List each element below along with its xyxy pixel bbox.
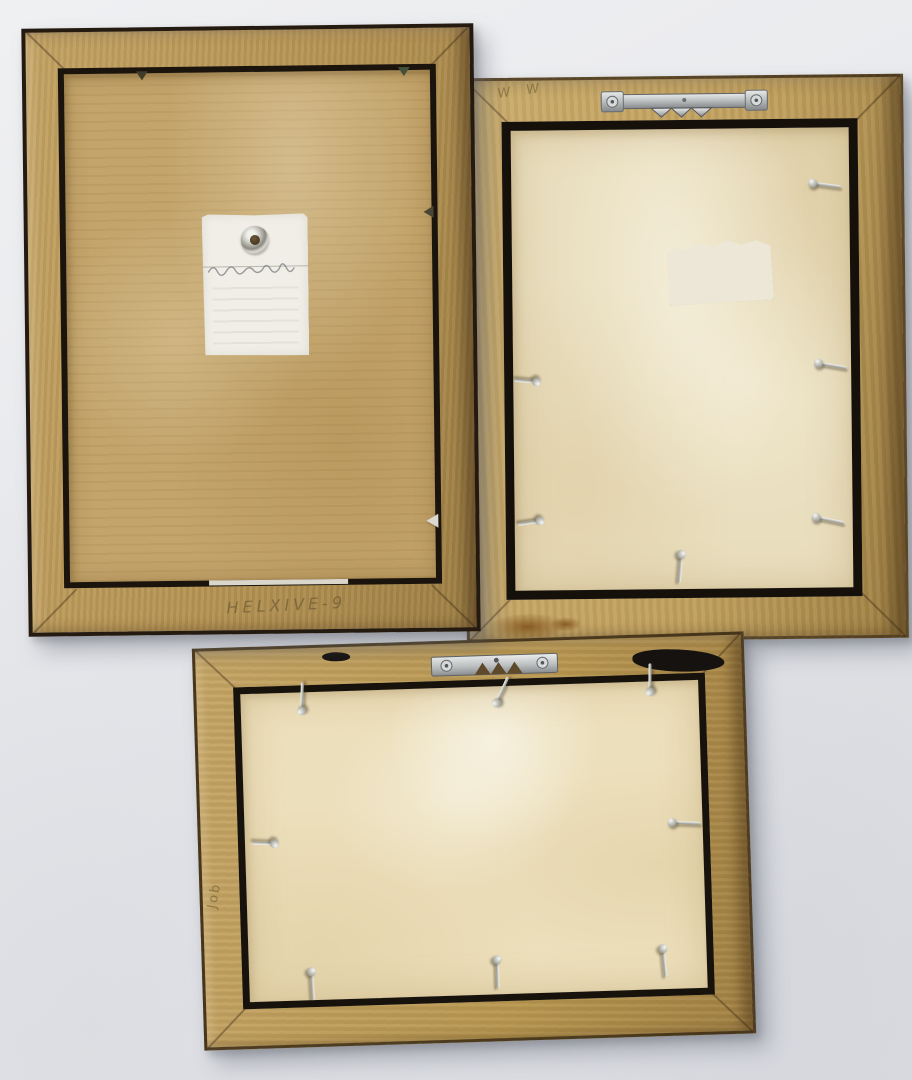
paper-dust-cover [502, 118, 863, 600]
glazing-point [423, 206, 433, 218]
hang-tag [202, 213, 310, 356]
cardboard-backing [58, 64, 442, 589]
paper-dust-cover [233, 673, 715, 1010]
miter-joint [854, 75, 900, 122]
nail [493, 955, 503, 989]
backing-gap-highlight [209, 579, 348, 586]
glazing-point [426, 514, 438, 528]
nail [245, 838, 279, 848]
nail [667, 818, 701, 828]
miter-joint [431, 584, 477, 629]
faded-tag-text [212, 283, 299, 344]
nail [297, 681, 307, 715]
miter-joint [33, 588, 78, 634]
frame-top-left: HELXIVE-9 [21, 23, 480, 636]
sawtooth-hanger [599, 85, 769, 121]
blank-sticker-label [666, 237, 774, 305]
nail [645, 662, 654, 696]
miter-joint [859, 590, 906, 636]
frame-top-right: W W [461, 74, 909, 643]
strap-hanger [430, 649, 559, 681]
glazing-point [398, 67, 410, 76]
miter-joint [207, 1005, 248, 1049]
miter-joint [709, 991, 753, 1032]
glazing-point [136, 71, 148, 80]
miter-joint [195, 650, 239, 691]
frame-bottom: Job [192, 631, 756, 1050]
wall-background: HELXIVE-9 W W [0, 0, 912, 1080]
